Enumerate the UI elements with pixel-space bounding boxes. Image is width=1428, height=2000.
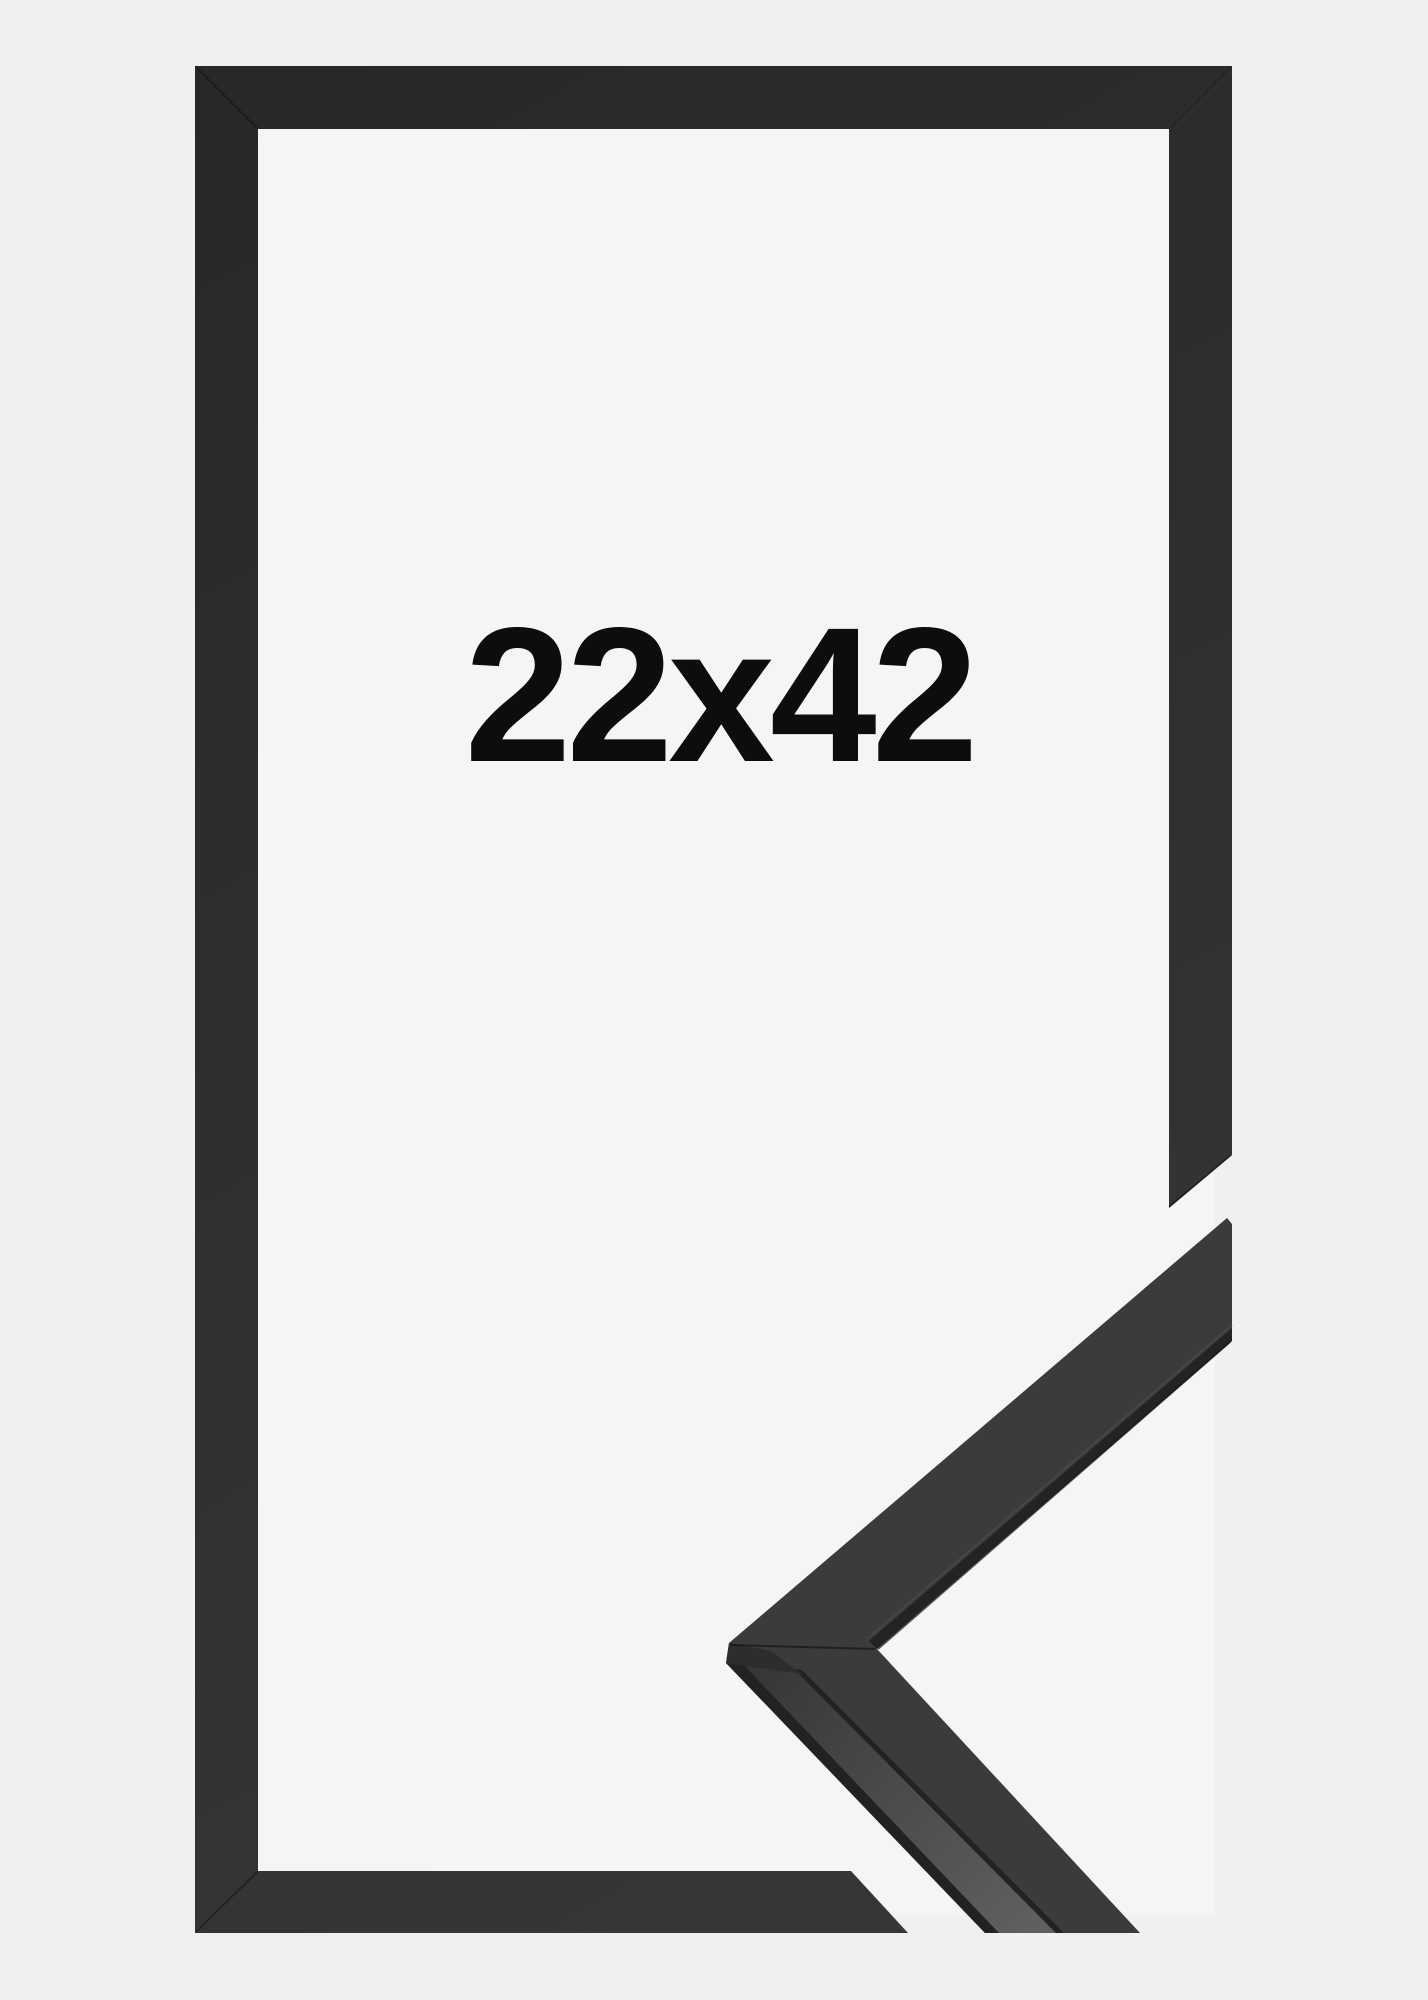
frame-product-image: 22x42	[0, 0, 1428, 2000]
frame-mat-area	[215, 85, 1215, 1915]
frame-bottom-bar	[195, 1871, 908, 1933]
frame-right-bar	[1169, 129, 1232, 1208]
frame-top-bar	[195, 66, 1232, 129]
frame-product-graphic: 22x42	[0, 0, 1428, 2000]
size-label: 22x42	[465, 587, 974, 802]
frame-left-bar	[195, 66, 258, 1933]
